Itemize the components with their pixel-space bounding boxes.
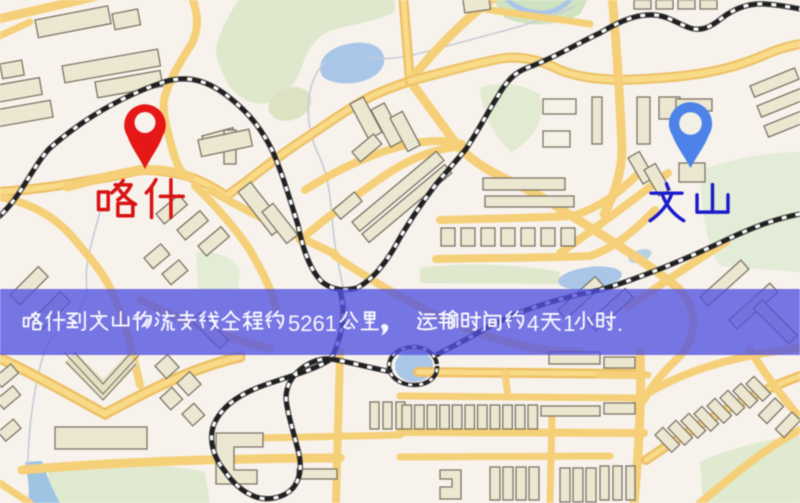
svg-text:.: . xyxy=(617,311,623,336)
svg-text:5261: 5261 xyxy=(288,311,337,336)
svg-text:1: 1 xyxy=(563,311,575,336)
svg-text:4: 4 xyxy=(527,311,539,336)
